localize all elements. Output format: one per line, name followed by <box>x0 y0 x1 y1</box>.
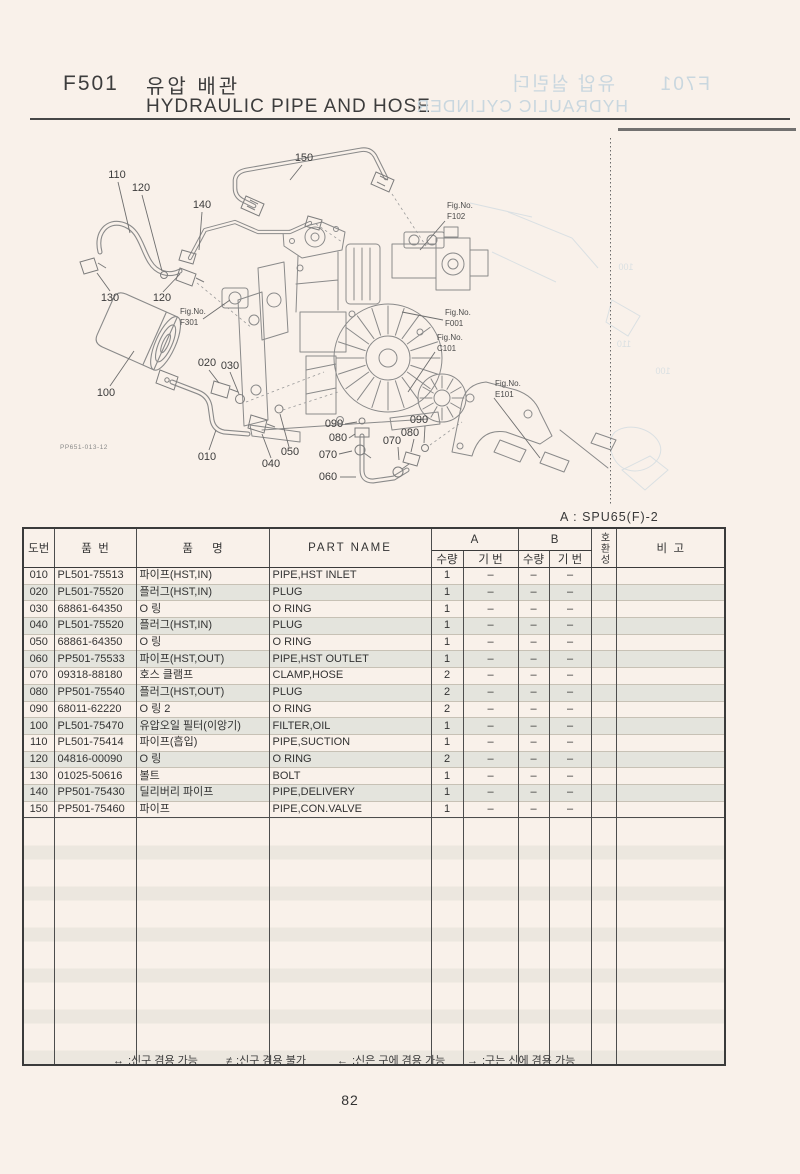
callout-060: 060 <box>319 471 337 483</box>
svg-text:Fig.No.: Fig.No. <box>447 201 473 210</box>
cell-ref-b: – <box>549 651 591 668</box>
cell-name-kr: O 링 2 <box>136 701 269 718</box>
cell-part-no: PL501-75414 <box>54 734 136 751</box>
callout-140: 140 <box>193 199 211 211</box>
callout-050: 050 <box>281 446 299 458</box>
cell-qty-b: – <box>518 784 549 801</box>
table-row: 07009318-88180호스 클램프CLAMP,HOSE2––– <box>23 668 725 685</box>
fig-label-F301: Fig.No. F301 <box>180 307 206 327</box>
fig-label-E101: Fig.No. E101 <box>495 379 521 399</box>
fig-label-F102: Fig.No. F102 <box>447 201 473 221</box>
cell-compat <box>591 634 616 651</box>
callout-120b: 120 <box>153 292 171 304</box>
cell-part-no: PP501-75533 <box>54 651 136 668</box>
cell-qty-a: 2 <box>431 701 463 718</box>
cell-ref-b: – <box>549 701 591 718</box>
cell-qty-b: – <box>518 668 549 685</box>
cell-remarks <box>616 601 725 618</box>
cell-qty-b: – <box>518 734 549 751</box>
fig-label-F001: Fig.No. F001 <box>445 308 471 328</box>
cell-no: 150 <box>23 801 54 818</box>
cell-ref-a: – <box>463 601 518 618</box>
callout-040: 040 <box>262 458 280 470</box>
callout-070b: 070 <box>383 435 401 447</box>
cell-name-en: CLAMP,HOSE <box>269 668 431 685</box>
exploded-parts-diagram: 100 110 100 <box>0 120 800 520</box>
table-empty-area <box>23 818 725 1066</box>
cell-no: 010 <box>23 568 54 585</box>
not-equal-icon: ≠ <box>226 1055 232 1067</box>
cell-name-kr: 유압오일 필터(이앙기) <box>136 718 269 735</box>
cell-ref-a: – <box>463 768 518 785</box>
cell-remarks <box>616 651 725 668</box>
header-part-no: 품 번 <box>54 528 136 568</box>
cell-no: 050 <box>23 634 54 651</box>
cell-qty-a: 1 <box>431 618 463 635</box>
cell-qty-a: 2 <box>431 668 463 685</box>
header-qty-a: 수량 <box>431 551 463 568</box>
cell-name-en: O RING <box>269 751 431 768</box>
cell-part-no: PP501-75430 <box>54 784 136 801</box>
callout-120: 120 <box>132 182 150 194</box>
cell-name-en: O RING <box>269 601 431 618</box>
cell-name-kr: O 링 <box>136 601 269 618</box>
cell-qty-b: – <box>518 801 549 818</box>
cell-qty-b: – <box>518 618 549 635</box>
cell-ref-b: – <box>549 618 591 635</box>
cell-part-no: PL501-75513 <box>54 568 136 585</box>
cell-name-kr: 플러그(HST,IN) <box>136 584 269 601</box>
catalog-page: F501 유압 배관 HYDRAULIC PIPE AND HOSE F701 … <box>0 0 800 1174</box>
right-arrow-icon: → <box>467 1055 478 1067</box>
cell-compat <box>591 768 616 785</box>
bleed-label: 100 <box>655 366 670 376</box>
cell-ref-b: – <box>549 634 591 651</box>
cell-no: 040 <box>23 618 54 635</box>
cell-part-no: 68861-64350 <box>54 601 136 618</box>
callout-130: 130 <box>101 292 119 304</box>
cell-name-en: O RING <box>269 634 431 651</box>
table-row: 03068861-64350O 링O RING1––– <box>23 601 725 618</box>
page-number: 82 <box>330 1092 370 1108</box>
cell-ref-a: – <box>463 584 518 601</box>
cell-no: 020 <box>23 584 54 601</box>
cell-no: 060 <box>23 651 54 668</box>
parts-table: 도번 품 번 품 명 PART NAME A B 호환성 비 고 수량 기 번 … <box>22 527 726 1066</box>
cell-ref-a: – <box>463 618 518 635</box>
cell-compat <box>591 668 616 685</box>
table-row: 010PL501-75513파이프(HST,IN)PIPE,HST INLET1… <box>23 568 725 585</box>
cell-remarks <box>616 718 725 735</box>
model-variant-note: A : SPU65(F)-2 <box>560 510 659 524</box>
cell-name-en: PLUG <box>269 618 431 635</box>
callout-090: 090 <box>325 418 343 430</box>
table-row: 100PL501-75470유압오일 필터(이앙기)FILTER,OIL1––– <box>23 718 725 735</box>
table-row: 020PL501-75520플러그(HST,IN)PLUG1––– <box>23 584 725 601</box>
cell-qty-b: – <box>518 751 549 768</box>
cell-name-en: PIPE,DELIVERY <box>269 784 431 801</box>
cell-ref-a: – <box>463 668 518 685</box>
cell-name-kr: O 링 <box>136 634 269 651</box>
cell-qty-b: – <box>518 701 549 718</box>
cell-name-en: O RING <box>269 701 431 718</box>
cell-no: 030 <box>23 601 54 618</box>
legend-item-not-compatible: ≠;신구 겸용 불가 <box>226 1052 306 1068</box>
cell-qty-b: – <box>518 584 549 601</box>
cell-compat <box>591 601 616 618</box>
bleed-label: 110 <box>617 339 631 349</box>
cell-remarks <box>616 784 725 801</box>
cell-part-no: PL501-75520 <box>54 618 136 635</box>
cell-ref-a: – <box>463 651 518 668</box>
header-ref-a: 기 번 <box>463 551 518 568</box>
cell-qty-b: – <box>518 684 549 701</box>
callout-150: 150 <box>295 152 313 164</box>
cell-qty-b: – <box>518 568 549 585</box>
cell-remarks <box>616 801 725 818</box>
cell-name-kr: 플러그(HST,OUT) <box>136 684 269 701</box>
svg-text:F001: F001 <box>445 319 464 328</box>
cell-part-no: 01025-50616 <box>54 768 136 785</box>
cell-name-kr: 파이프(HST,OUT) <box>136 651 269 668</box>
cell-name-kr: O 링 <box>136 751 269 768</box>
cell-remarks <box>616 584 725 601</box>
cell-name-en: PLUG <box>269 684 431 701</box>
cell-name-kr: 볼트 <box>136 768 269 785</box>
table-row: 12004816-00090O 링O RING2––– <box>23 751 725 768</box>
callout-010: 010 <box>198 451 216 463</box>
cell-no: 090 <box>23 701 54 718</box>
drawing-reference-code: PP651-013-12 <box>60 444 108 451</box>
cell-qty-b: – <box>518 651 549 668</box>
cell-remarks <box>616 634 725 651</box>
parts-table-body: 010PL501-75513파이프(HST,IN)PIPE,HST INLET1… <box>23 568 725 1066</box>
cell-ref-b: – <box>549 801 591 818</box>
cell-part-no: PP501-75540 <box>54 684 136 701</box>
cell-qty-a: 1 <box>431 768 463 785</box>
bleedthrough-title-line2: HYDRAULIC CYLINDER <box>368 96 628 116</box>
cell-ref-b: – <box>549 718 591 735</box>
fig-label-C101: Fig.No. C101 <box>437 333 463 353</box>
cell-no: 100 <box>23 718 54 735</box>
cell-qty-a: 1 <box>431 801 463 818</box>
cell-ref-a: – <box>463 784 518 801</box>
svg-text:F301: F301 <box>180 318 199 327</box>
header-qty-b: 수량 <box>518 551 549 568</box>
cell-no: 130 <box>23 768 54 785</box>
cell-part-no: 68861-64350 <box>54 634 136 651</box>
header-remarks: 비 고 <box>616 528 725 568</box>
cell-name-kr: 파이프(흡입) <box>136 734 269 751</box>
cell-remarks <box>616 668 725 685</box>
legend-item-new-fits-old: ←;신은 구에 겸용 가능 <box>337 1052 445 1068</box>
callout-090b: 090 <box>410 414 428 426</box>
svg-text:Fig.No.: Fig.No. <box>437 333 463 342</box>
cell-name-kr: 딜리버리 파이프 <box>136 784 269 801</box>
table-row: 060PP501-75533파이프(HST,OUT)PIPE,HST OUTLE… <box>23 651 725 668</box>
cell-remarks <box>616 701 725 718</box>
table-row: 150PP501-75460파이프PIPE,CON.VALVE1––– <box>23 801 725 818</box>
cell-ref-a: – <box>463 684 518 701</box>
bleed-label: 100 <box>618 262 633 272</box>
cell-compat <box>591 651 616 668</box>
cell-no: 070 <box>23 668 54 685</box>
cell-qty-a: 1 <box>431 584 463 601</box>
header-col-b: B <box>518 528 591 551</box>
callout-080b: 080 <box>401 427 419 439</box>
cell-compat <box>591 751 616 768</box>
cell-part-no: PP501-75460 <box>54 801 136 818</box>
table-row: 080PP501-75540플러그(HST,OUT)PLUG2––– <box>23 684 725 701</box>
table-row: 13001025-50616볼트BOLT1––– <box>23 768 725 785</box>
cell-ref-a: – <box>463 718 518 735</box>
bleedthrough-shapes: 100 110 100 <box>470 203 671 490</box>
cell-ref-b: – <box>549 601 591 618</box>
cell-part-no: 04816-00090 <box>54 751 136 768</box>
cell-qty-b: – <box>518 601 549 618</box>
cell-ref-a: – <box>463 568 518 585</box>
cell-compat <box>591 801 616 818</box>
header-part-name: PART NAME <box>269 528 431 568</box>
cell-remarks <box>616 684 725 701</box>
cell-qty-a: 1 <box>431 718 463 735</box>
cell-part-no: PL501-75520 <box>54 584 136 601</box>
cell-compat <box>591 568 616 585</box>
table-row: 05068861-64350O 링O RING1––– <box>23 634 725 651</box>
left-arrow-icon: ← <box>337 1055 348 1067</box>
svg-text:F102: F102 <box>447 212 466 221</box>
cell-name-kr: 호스 클램프 <box>136 668 269 685</box>
cell-name-en: FILTER,OIL <box>269 718 431 735</box>
cell-qty-b: – <box>518 634 549 651</box>
cell-qty-a: 2 <box>431 751 463 768</box>
cell-compat <box>591 784 616 801</box>
svg-text:Fig.No.: Fig.No. <box>180 307 206 316</box>
cell-ref-b: – <box>549 784 591 801</box>
table-row: 140PP501-75430딜리버리 파이프PIPE,DELIVERY1––– <box>23 784 725 801</box>
cell-no: 120 <box>23 751 54 768</box>
cell-name-kr: 파이프(HST,IN) <box>136 568 269 585</box>
table-row: 09068011-62220O 링 2O RING2––– <box>23 701 725 718</box>
legend-item-old-fits-new: →;구는 신에 겸용 가능 <box>467 1052 575 1068</box>
cell-name-en: PIPE,CON.VALVE <box>269 801 431 818</box>
header-name-kr: 품 명 <box>136 528 269 568</box>
bleedthrough-title-line1: F701 유압 실린더 <box>368 74 710 96</box>
cell-compat <box>591 584 616 601</box>
cell-qty-a: 1 <box>431 601 463 618</box>
cell-qty-a: 1 <box>431 634 463 651</box>
cell-name-en: PIPE,HST OUTLET <box>269 651 431 668</box>
cell-remarks <box>616 751 725 768</box>
svg-text:Fig.No.: Fig.No. <box>495 379 521 388</box>
cell-compat <box>591 684 616 701</box>
bleedthrough-title: F701 유압 실린더 HYDRAULIC CYLINDER <box>368 74 710 116</box>
cell-ref-a: – <box>463 751 518 768</box>
callout-080: 080 <box>329 432 347 444</box>
header-col-a: A <box>431 528 518 551</box>
callout-110: 110 <box>108 169 126 181</box>
header-ref-b: 기 번 <box>549 551 591 568</box>
cell-part-no: 68011-62220 <box>54 701 136 718</box>
svg-text:C101: C101 <box>437 344 457 353</box>
callout-labels: 150 110 120 140 130 120 100 020 030 010 … <box>97 152 428 483</box>
cell-remarks <box>616 618 725 635</box>
table-row: 110PL501-75414파이프(흡입)PIPE,SUCTION1––– <box>23 734 725 751</box>
cell-qty-b: – <box>518 718 549 735</box>
cell-ref-a: – <box>463 701 518 718</box>
page-code: F501 <box>63 72 119 96</box>
cell-no: 080 <box>23 684 54 701</box>
cell-ref-a: – <box>463 634 518 651</box>
cell-compat <box>591 718 616 735</box>
cell-remarks <box>616 734 725 751</box>
cell-ref-a: – <box>463 734 518 751</box>
page-title-korean: 유압 배관 <box>146 70 240 99</box>
cell-ref-b: – <box>549 668 591 685</box>
header-compat: 호환성 <box>591 528 616 568</box>
cell-ref-b: – <box>549 684 591 701</box>
cell-ref-b: – <box>549 734 591 751</box>
callout-030: 030 <box>221 360 239 372</box>
cell-name-kr: 파이프 <box>136 801 269 818</box>
cell-qty-a: 1 <box>431 734 463 751</box>
parts-table-header: 도번 품 번 품 명 PART NAME A B 호환성 비 고 수량 기 번 … <box>23 528 725 568</box>
cell-qty-b: – <box>518 768 549 785</box>
cell-name-kr: 플러그(HST,IN) <box>136 618 269 635</box>
cell-ref-b: – <box>549 751 591 768</box>
cell-qty-a: 1 <box>431 651 463 668</box>
cell-no: 140 <box>23 784 54 801</box>
svg-text:Fig.No.: Fig.No. <box>445 308 471 317</box>
cell-ref-b: – <box>549 768 591 785</box>
cell-remarks <box>616 768 725 785</box>
callout-020: 020 <box>198 357 216 369</box>
header-no: 도번 <box>23 528 54 568</box>
cell-compat <box>591 734 616 751</box>
cell-name-en: PIPE,SUCTION <box>269 734 431 751</box>
callout-100: 100 <box>97 387 115 399</box>
cell-ref-a: – <box>463 801 518 818</box>
cell-part-no: PL501-75470 <box>54 718 136 735</box>
cell-name-en: PIPE,HST INLET <box>269 568 431 585</box>
svg-text:E101: E101 <box>495 390 514 399</box>
cell-name-en: BOLT <box>269 768 431 785</box>
cell-compat <box>591 701 616 718</box>
cell-qty-a: 1 <box>431 568 463 585</box>
cell-qty-a: 2 <box>431 684 463 701</box>
cell-compat <box>591 618 616 635</box>
callout-070: 070 <box>319 449 337 461</box>
legend-item-both-compatible: ↔;신구 겸용 가능 <box>113 1052 198 1068</box>
cell-remarks <box>616 568 725 585</box>
double-arrow-icon: ↔ <box>113 1055 124 1067</box>
cell-ref-b: – <box>549 568 591 585</box>
cell-part-no: 09318-88180 <box>54 668 136 685</box>
cell-name-en: PLUG <box>269 584 431 601</box>
cell-qty-a: 1 <box>431 784 463 801</box>
cell-no: 110 <box>23 734 54 751</box>
table-row: 040PL501-75520플러그(HST,IN)PLUG1––– <box>23 618 725 635</box>
cell-ref-b: – <box>549 584 591 601</box>
